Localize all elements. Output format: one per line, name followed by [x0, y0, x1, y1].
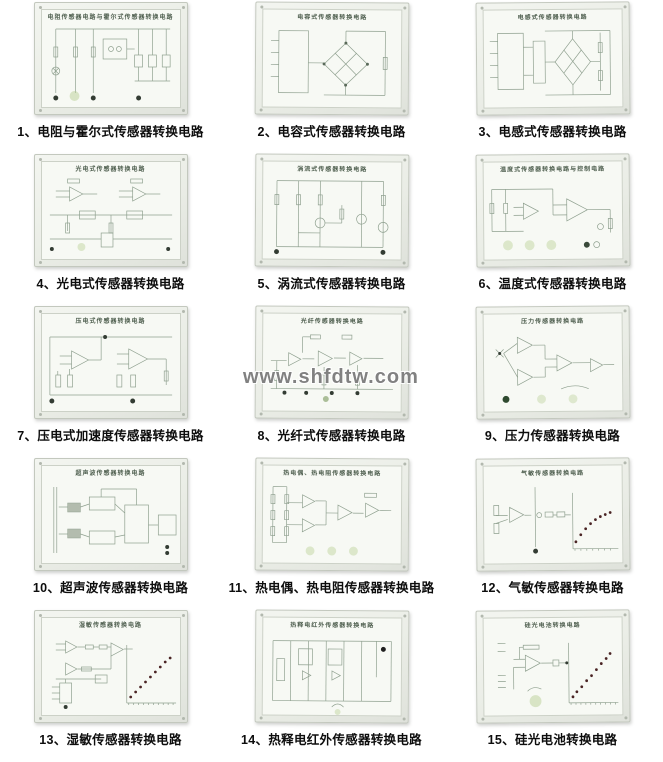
- circuit-board: 光电式传感器转换电路: [41, 161, 181, 260]
- panel-photo: 热释电红外传感器转换电路: [254, 609, 409, 723]
- circuit-schematic-icon: [262, 631, 401, 716]
- circuit-schematic-icon: [483, 630, 622, 715]
- circuit-board: 热释电红外传感器转换电路: [261, 617, 402, 717]
- panel-caption: 9、压力传感器转换电路: [485, 425, 620, 444]
- panel-photo: 电感式传感器转换电路: [475, 1, 630, 115]
- panel-card: 电容式传感器转换电路2、电容式传感器转换电路: [221, 2, 442, 154]
- circuit-schematic-icon: [483, 326, 622, 411]
- circuit-board: 热电偶、热电阻传感器转换电路: [261, 465, 402, 565]
- circuit-board: 气敏传感器转换电路: [482, 464, 623, 564]
- board-title: 温度式传感器转换电路与控制电路: [483, 161, 621, 175]
- panel-card: 电感式传感器转换电路3、电感式传感器转换电路: [442, 2, 663, 154]
- panel-card: 电阻传感器电路与霍尔式传感器转换电路1、电阻与霍尔式传感器转换电路: [0, 2, 221, 154]
- panel-photo: 电阻传感器电路与霍尔式传感器转换电路: [34, 2, 188, 115]
- panel-card: 硅光电池转换电路15、硅光电池转换电路: [442, 610, 663, 762]
- circuit-schematic-icon: [42, 631, 180, 715]
- panel-card: 压力传感器转换电路9、压力传感器转换电路: [442, 306, 663, 458]
- panel-card: 涡流式传感器转换电路5、涡流式传感器转换电路: [221, 154, 442, 306]
- circuit-board: 电感式传感器转换电路: [482, 8, 623, 108]
- panel-photo: 超声波传感器转换电路: [34, 458, 188, 571]
- circuit-board: 电容式传感器转换电路: [261, 9, 402, 109]
- panel-caption: 1、电阻与霍尔式传感器转换电路: [17, 121, 203, 140]
- circuit-board: 压电式传感器转换电路: [41, 313, 181, 412]
- circuit-board: 温度式传感器转换电路与控制电路: [482, 160, 623, 260]
- board-title: 压力传感器转换电路: [483, 313, 621, 327]
- panel-caption: 6、温度式传感器转换电路: [478, 273, 626, 292]
- board-title: 热电偶、热电阻传感器转换电路: [263, 466, 401, 480]
- panel-caption: 10、超声波传感器转换电路: [33, 577, 188, 596]
- panel-card: 热电偶、热电阻传感器转换电路11、热电偶、热电阻传感器转换电路: [221, 458, 442, 610]
- board-title: 超声波传感器转换电路: [42, 466, 180, 479]
- panel-photo: 硅光电池转换电路: [475, 609, 630, 723]
- panel-photo: 光电式传感器转换电路: [34, 154, 188, 267]
- panel-caption: 12、气敏传感器转换电路: [481, 577, 624, 596]
- panel-caption: 3、电感式传感器转换电路: [478, 121, 626, 140]
- board-title: 光电式传感器转换电路: [42, 162, 180, 175]
- panel-photo: 电容式传感器转换电路: [254, 1, 409, 115]
- panel-card: 温度式传感器转换电路与控制电路6、温度式传感器转换电路: [442, 154, 663, 306]
- board-title: 电感式传感器转换电路: [483, 9, 621, 23]
- board-title: 涡流式传感器转换电路: [263, 162, 401, 176]
- panel-caption: 2、电容式传感器转换电路: [257, 121, 405, 140]
- panel-photo: 湿敏传感器转换电路: [34, 610, 188, 723]
- circuit-board: 电阻传感器电路与霍尔式传感器转换电路: [41, 9, 181, 108]
- circuit-board: 湿敏传感器转换电路: [41, 617, 181, 716]
- board-title: 热释电红外传感器转换电路: [263, 618, 401, 632]
- panel-caption: 13、湿敏传感器转换电路: [39, 729, 182, 748]
- panel-caption: 14、热释电红外传感器转换电路: [241, 729, 422, 748]
- watermark: www.shfdtw.com: [243, 366, 419, 389]
- circuit-board: 光纤传感器转换电路: [261, 313, 402, 413]
- circuit-board: 硅光电池转换电路: [482, 616, 623, 716]
- circuit-schematic-icon: [483, 478, 622, 563]
- board-title: 电容式传感器转换电路: [263, 10, 401, 24]
- panel-photo: 温度式传感器转换电路与控制电路: [475, 153, 630, 267]
- circuit-schematic-icon: [262, 175, 401, 260]
- panel-caption: 11、热电偶、热电阻传感器转换电路: [229, 577, 435, 596]
- board-title: 湿敏传感器转换电路: [42, 618, 180, 631]
- panel-caption: 5、涡流式传感器转换电路: [257, 273, 405, 292]
- circuit-schematic-icon: [42, 327, 180, 411]
- panel-card: 湿敏传感器转换电路13、湿敏传感器转换电路: [0, 610, 221, 762]
- panel-photo: 气敏传感器转换电路: [475, 457, 630, 571]
- circuit-schematic-icon: [483, 174, 622, 259]
- circuit-schematic-icon: [262, 23, 401, 108]
- board-title: 电阻传感器电路与霍尔式传感器转换电路: [42, 10, 180, 23]
- panel-photo: 光纤传感器转换电路: [254, 305, 409, 419]
- panel-card: 超声波传感器转换电路10、超声波传感器转换电路: [0, 458, 221, 610]
- board-title: 气敏传感器转换电路: [483, 465, 621, 479]
- panel-card: 气敏传感器转换电路12、气敏传感器转换电路: [442, 458, 663, 610]
- panel-caption: 4、光电式传感器转换电路: [36, 273, 184, 292]
- panel-card: 压电式传感器转换电路7、压电式加速度传感器转换电路: [0, 306, 221, 458]
- panel-card: 热释电红外传感器转换电路14、热释电红外传感器转换电路: [221, 610, 442, 762]
- panel-photo: 热电偶、热电阻传感器转换电路: [254, 457, 409, 571]
- panel-card: 光电式传感器转换电路4、光电式传感器转换电路: [0, 154, 221, 306]
- board-title: 压电式传感器转换电路: [42, 314, 180, 327]
- panel-photo: 压力传感器转换电路: [475, 305, 630, 419]
- panel-caption: 8、光纤式传感器转换电路: [257, 425, 405, 444]
- circuit-board: 超声波传感器转换电路: [41, 465, 181, 564]
- circuit-schematic-icon: [483, 22, 622, 107]
- panel-photo: 涡流式传感器转换电路: [254, 153, 409, 267]
- panel-caption: 7、压电式加速度传感器转换电路: [17, 425, 203, 444]
- circuit-board: 涡流式传感器转换电路: [261, 161, 402, 261]
- board-title: 硅光电池转换电路: [483, 617, 621, 631]
- panel-caption: 15、硅光电池转换电路: [488, 729, 618, 748]
- circuit-schematic-icon: [42, 175, 180, 259]
- circuit-board: 压力传感器转换电路: [482, 312, 623, 412]
- board-title: 光纤传感器转换电路: [263, 314, 401, 328]
- panel-photo: 压电式传感器转换电路: [34, 306, 188, 419]
- circuit-schematic-icon: [42, 479, 180, 563]
- circuit-schematic-icon: [262, 479, 401, 564]
- circuit-schematic-icon: [42, 23, 180, 107]
